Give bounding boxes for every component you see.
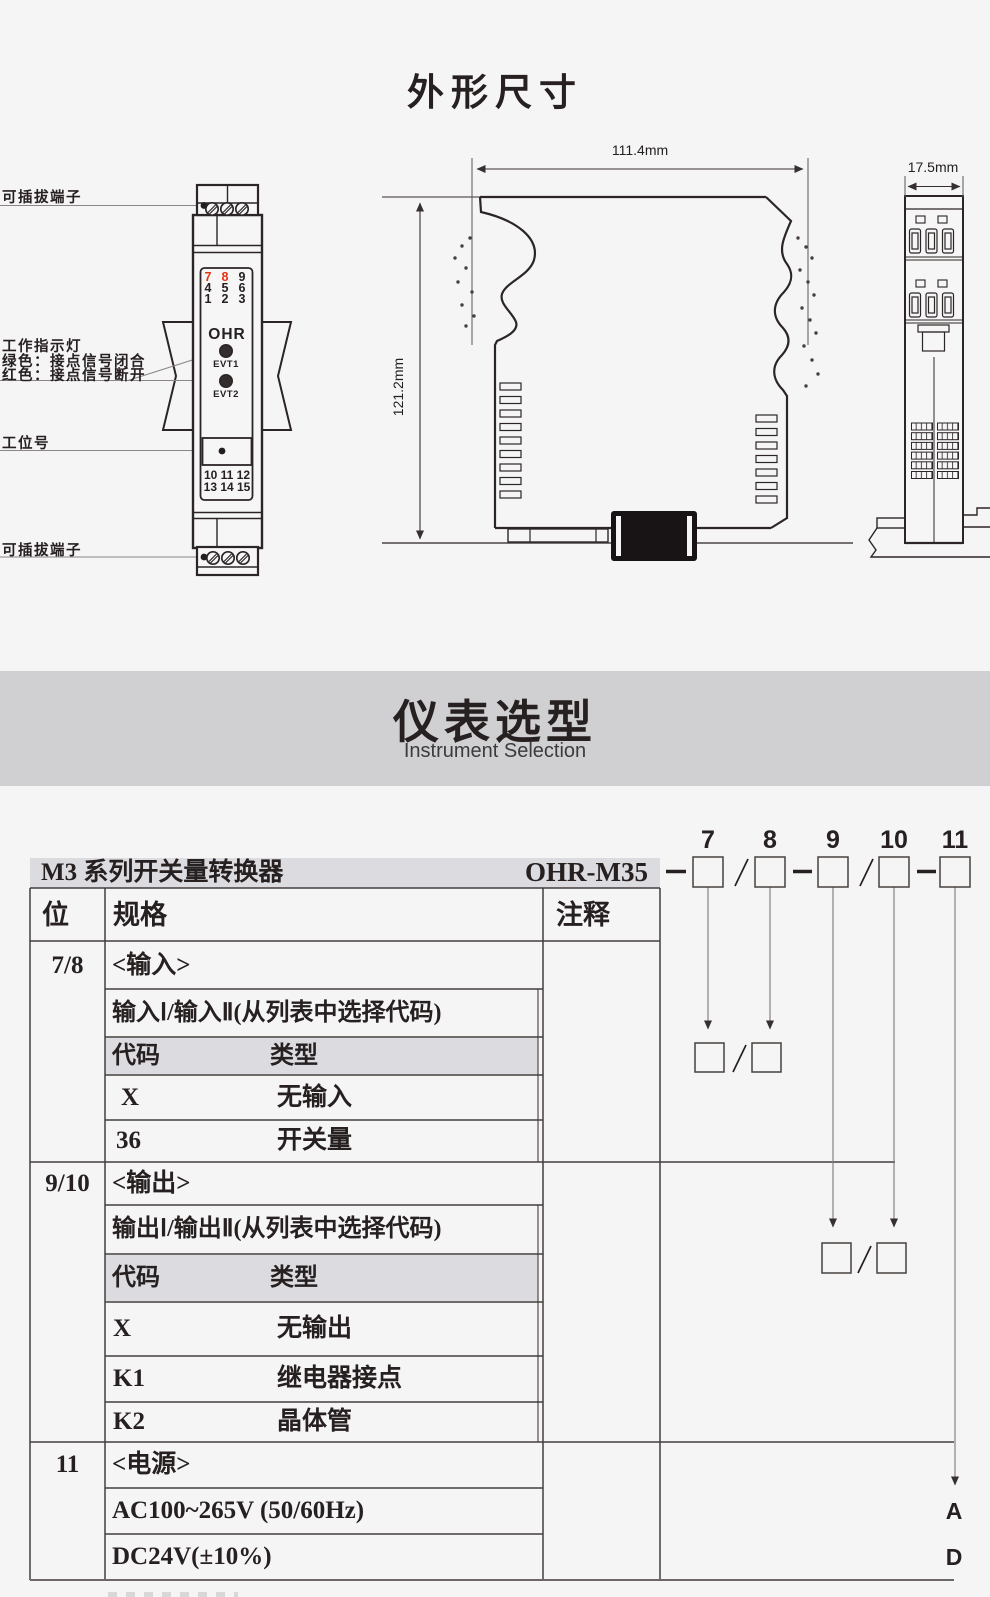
code-header: 代码 <box>112 1037 160 1075</box>
digit-label-7: 7 <box>693 826 723 855</box>
brand-logo: OHR <box>205 326 249 344</box>
code-cell: X <box>121 1075 139 1120</box>
output-heading: <输出> <box>112 1162 191 1205</box>
side-view-drawing <box>382 158 853 561</box>
input-subheading: 输入Ⅰ/输入Ⅱ(从列表中选择代码) <box>112 989 442 1037</box>
callout-tag-number: 工位号 <box>2 432 50 453</box>
bus-connector <box>611 511 697 561</box>
type-cell: 无输入 <box>277 1075 352 1120</box>
din-clip <box>508 529 608 542</box>
power-spec: AC100~265V (50/60Hz) <box>112 1488 364 1534</box>
led-evt2-icon <box>220 375 232 387</box>
type-cell: 继电器接点 <box>277 1356 402 1402</box>
model-prefix: OHR-M35 <box>500 857 648 888</box>
screw-icon <box>206 203 248 215</box>
callout-terminal-top: 可插拔端子 <box>2 186 82 207</box>
type-header: 类型 <box>270 1254 318 1302</box>
rail-left <box>877 518 905 528</box>
din-rail-left <box>163 322 193 430</box>
col-header-position: 位 <box>42 890 69 941</box>
section-position: 7/8 <box>30 942 105 989</box>
end-view-drawing <box>869 176 990 557</box>
code-cell: K1 <box>113 1356 145 1402</box>
digit-label-8: 8 <box>755 826 785 855</box>
code-header: 代码 <box>112 1254 160 1302</box>
power-heading: <电源> <box>112 1442 191 1488</box>
power-spec: DC24V(±10%) <box>112 1534 272 1580</box>
rail-right <box>963 508 990 527</box>
din-rail-right <box>262 322 291 430</box>
code-boxes <box>693 857 970 1273</box>
led2-label: EVT2 <box>210 389 242 400</box>
input-heading: <输入> <box>112 942 191 989</box>
terminal-digit: 1 <box>201 293 215 305</box>
digit-label-10: 10 <box>879 826 909 855</box>
digit-label-11: 11 <box>940 826 970 855</box>
power-code-d: D <box>940 1544 968 1571</box>
power-code-a: A <box>940 1498 968 1525</box>
datasheet-page: 外形尺寸 可插拔端子 工作指示灯 绿色：接点信号闭合 红色：接点信号断开 工位号… <box>0 0 990 1597</box>
terminal-digit: 3 <box>235 293 249 305</box>
callout-terminal-bottom: 可插拔端子 <box>2 539 82 560</box>
type-cell: 无输出 <box>277 1302 352 1356</box>
screw-icon <box>207 552 249 564</box>
led1-label: EVT1 <box>210 359 242 370</box>
series-title: M3 系列开关量转换器 <box>41 858 283 888</box>
type-cell: 晶体管 <box>277 1402 352 1442</box>
code-cell: X <box>113 1302 131 1356</box>
dim-height-label: 121.2mm <box>390 347 406 427</box>
digit-label-9: 9 <box>818 826 848 855</box>
band-subtitle: Instrument Selection <box>0 740 990 763</box>
section-position: 11 <box>30 1442 105 1488</box>
dim-width-label: 111.4mm <box>600 142 680 158</box>
code-cell: 36 <box>116 1120 141 1162</box>
type-header: 类型 <box>270 1037 318 1075</box>
output-subheading: 输出Ⅰ/输出Ⅱ(从列表中选择代码) <box>112 1205 442 1254</box>
vent-slots-left <box>500 383 521 498</box>
section-position: 9/10 <box>30 1162 105 1205</box>
terminal-digit: 2 <box>218 293 232 305</box>
page-title: 外形尺寸 <box>0 62 990 116</box>
vent-slots-right <box>756 415 777 503</box>
led-evt1-icon <box>220 345 232 357</box>
col-header-note: 注释 <box>556 890 610 941</box>
code-connector-lines <box>666 857 970 1485</box>
dim-depth-label: 17.5mm <box>900 159 966 175</box>
callout-indicator-red: 红色：接点信号断开 <box>2 364 146 385</box>
terminal-digits-row: 13 14 15 <box>200 481 254 493</box>
col-header-spec: 规格 <box>113 890 167 941</box>
type-cell: 开关量 <box>277 1120 352 1162</box>
line-art <box>0 0 990 1597</box>
code-cell: K2 <box>113 1402 145 1442</box>
